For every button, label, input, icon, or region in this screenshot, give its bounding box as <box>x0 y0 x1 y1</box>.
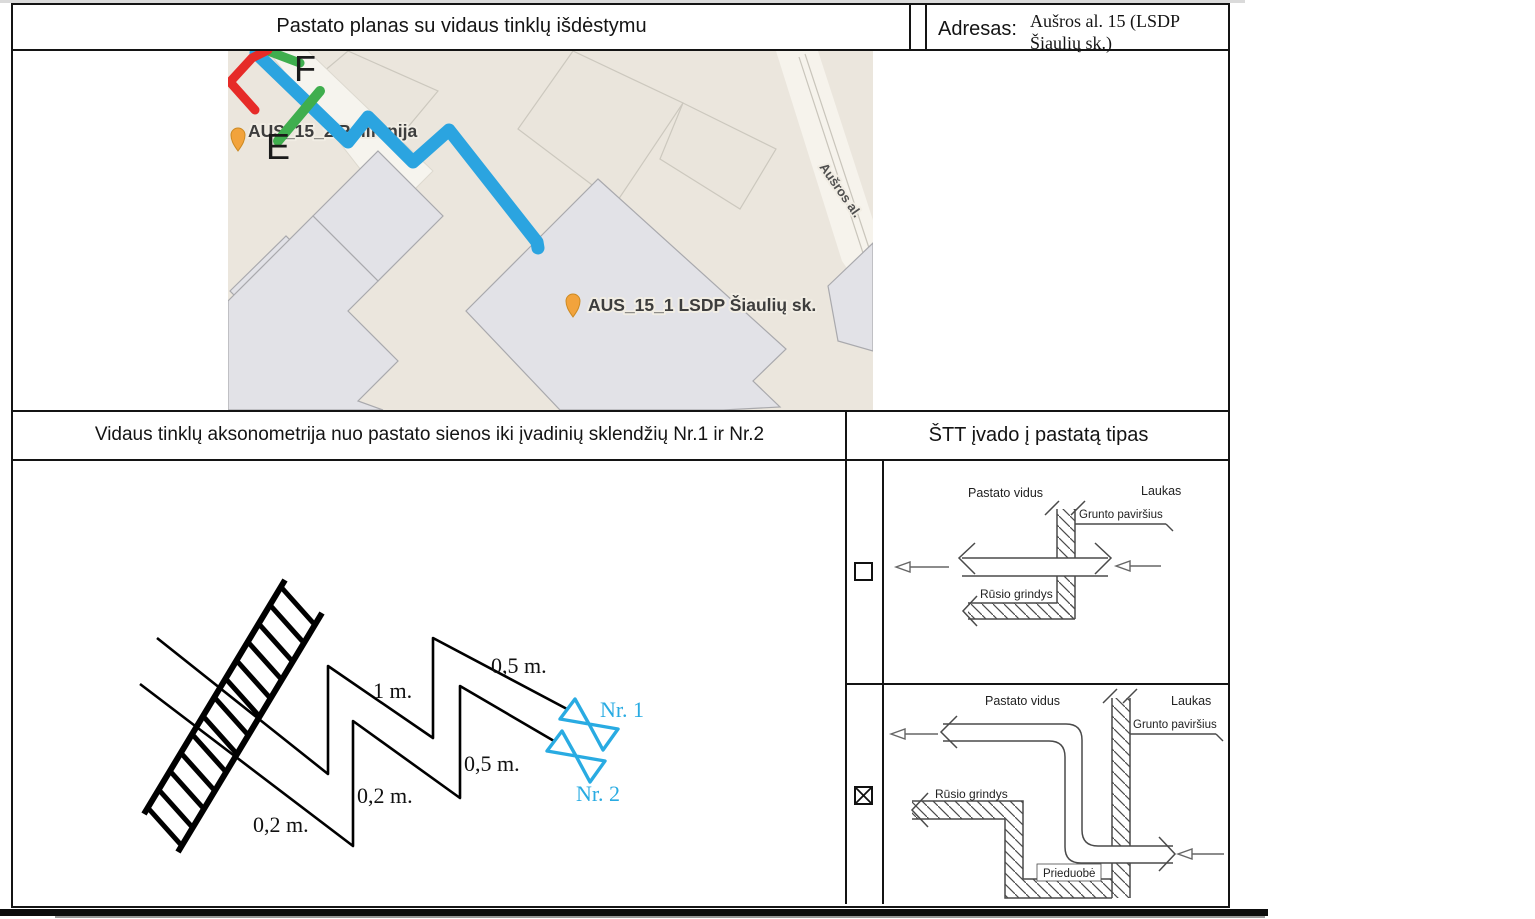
entry-type-2-checkbox[interactable] <box>854 786 873 805</box>
address-line1: Aušros al. 15 (LSDP <box>1030 10 1230 32</box>
entry-type-section-title: ŠTT įvado į pastatą tipas <box>847 411 1230 459</box>
valve1-label: Nr. 1 <box>600 697 644 722</box>
label-pit: Prieduobė <box>1043 868 1095 880</box>
dim-05m-mid: 0,5 m. <box>464 751 520 776</box>
address-value: Aušros al. 15 (LSDP Šiaulių sk.) <box>1030 10 1230 54</box>
grid-vline-address-start <box>925 3 927 51</box>
checked-mark-icon <box>856 788 871 803</box>
label-ground: Grunto paviršius <box>1079 509 1163 521</box>
dim-02m-bottom: 0,2 m. <box>253 812 309 837</box>
valve2-label: Nr. 2 <box>576 781 620 806</box>
label-ground: Grunto paviršius <box>1133 719 1217 731</box>
map-point-e: E <box>266 126 290 167</box>
document-page: Pastato planas su vidaus tinklų išdėstym… <box>0 0 1535 919</box>
bottom-gray-bar <box>55 916 1265 918</box>
site-map: AUS_15_2 Polifonija F E AUS_15_1 LSDP Ši… <box>228 51 873 410</box>
label-basement-floor: Rūsio grindys <box>980 587 1053 601</box>
label-inside: Pastato vidus <box>985 694 1060 708</box>
axonometry-drawing: 1 m. 0,5 m. 0,5 m. 0,2 m. 0,2 m. Nr. 1 N… <box>13 461 846 907</box>
grid-vline-title-end <box>909 3 911 51</box>
map-marker2-label: AUS_15_1 LSDP Šiaulių sk. <box>588 294 816 315</box>
dim-02m-mid: 0,2 m. <box>357 783 413 808</box>
axonometry-section-title: Vidaus tinklų aksonometrija nuo pastato … <box>14 411 845 459</box>
ground-surface-line <box>1130 734 1223 741</box>
label-basement-floor: Rūsio grindys <box>935 787 1008 801</box>
bottom-black-bar <box>0 909 1268 916</box>
dim-05m-top: 0,5 m. <box>491 653 547 678</box>
pipe-interior <box>962 559 1108 575</box>
address-label: Adresas: <box>938 18 1017 41</box>
entry-type-2-diagram: Pastato vidus Laukas Grunto paviršius Rū… <box>883 685 1230 907</box>
map-point-f: F <box>294 51 316 89</box>
label-outside: Laukas <box>1141 484 1181 498</box>
dim-1m: 1 m. <box>373 678 412 703</box>
page-title: Pastato planas su vidaus tinklų išdėstym… <box>14 4 909 49</box>
label-inside: Pastato vidus <box>968 486 1043 500</box>
address-line2: Šiaulių sk.) <box>1030 32 1230 54</box>
entry-type-1-checkbox[interactable] <box>854 562 873 581</box>
label-outside: Laukas <box>1171 694 1211 708</box>
ground-surface-line <box>1075 524 1173 531</box>
entry-type-1-diagram: Pastato vidus Laukas Grunto paviršius Rū… <box>883 461 1230 683</box>
